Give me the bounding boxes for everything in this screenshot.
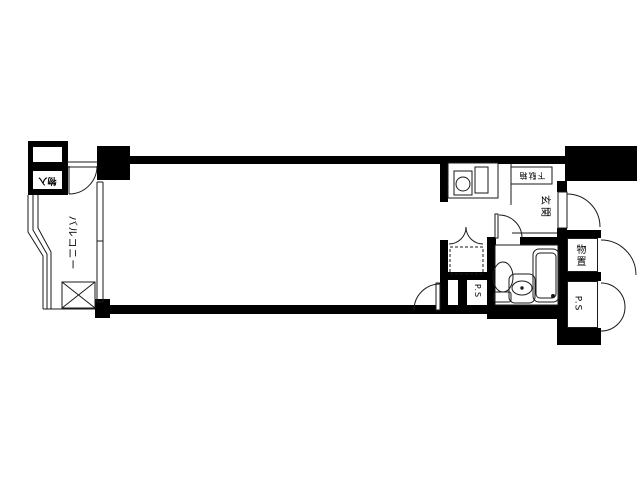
floorplan-canvas: バルコニー 物入 下駄箱 玄関 物置 P.S P.S — [0, 0, 640, 480]
entrance-door — [558, 192, 600, 228]
wall-kitchen-stub — [440, 156, 448, 202]
bathroom-door — [495, 214, 522, 238]
ps-door-swing-upper — [601, 283, 625, 307]
bathtub-drain — [552, 295, 555, 298]
wall-ps-left-west — [458, 280, 467, 305]
washbasin-drain — [521, 287, 523, 289]
wall-ps-bottom — [557, 328, 601, 345]
ps-left-door-leaf — [436, 283, 440, 310]
ps-door-swing-lower — [601, 307, 625, 331]
balcony-label: バルコニー — [65, 213, 77, 273]
bathroom-door-leaf — [495, 214, 498, 238]
window-balcony — [97, 182, 103, 302]
ps-left-label: P.S — [472, 278, 482, 304]
bifold-door-right — [466, 227, 483, 244]
storage-door-arc — [67, 162, 97, 194]
storage-door-swing — [69, 166, 97, 194]
wall-bottom-bath — [487, 305, 567, 319]
wall-closet-west — [440, 240, 448, 305]
shoe-cabinet-label: 下駄箱 — [512, 169, 552, 182]
wall-east-upper — [557, 181, 567, 192]
storage-door-swing-right — [601, 240, 636, 275]
wall-top — [128, 156, 565, 164]
balcony-storage-label: 物入 — [33, 172, 62, 188]
laundry-closet — [449, 227, 483, 274]
wall-column-top-left — [97, 146, 130, 180]
laundry-space-dashed — [450, 247, 483, 274]
entrance-label: 玄関 — [538, 191, 550, 223]
sink-icon — [475, 167, 488, 193]
kitchen-counter — [448, 163, 498, 198]
wall-bath-top-right — [520, 237, 567, 245]
bathroom-door-swing — [499, 215, 522, 238]
floorplan-drawing — [0, 0, 640, 480]
bifold-door-left — [449, 227, 466, 244]
wall-storage-top — [557, 230, 601, 238]
railing-line-outer — [28, 195, 43, 309]
wall-column-top-right — [565, 146, 637, 181]
storage-label: 物置 — [570, 239, 584, 273]
entrance-door-leaf — [558, 192, 567, 228]
evacuation-hatch-icon — [62, 282, 95, 308]
bathroom-interior — [495, 245, 558, 305]
entrance-door-swing — [567, 194, 600, 227]
wall-storage-bottom — [557, 272, 601, 281]
ps-right-label: P.S — [572, 290, 583, 318]
burner-icon — [456, 177, 470, 191]
storage-box-upper-cell — [33, 147, 62, 162]
bathroom — [493, 245, 559, 305]
wall-closet-separator — [448, 272, 490, 280]
